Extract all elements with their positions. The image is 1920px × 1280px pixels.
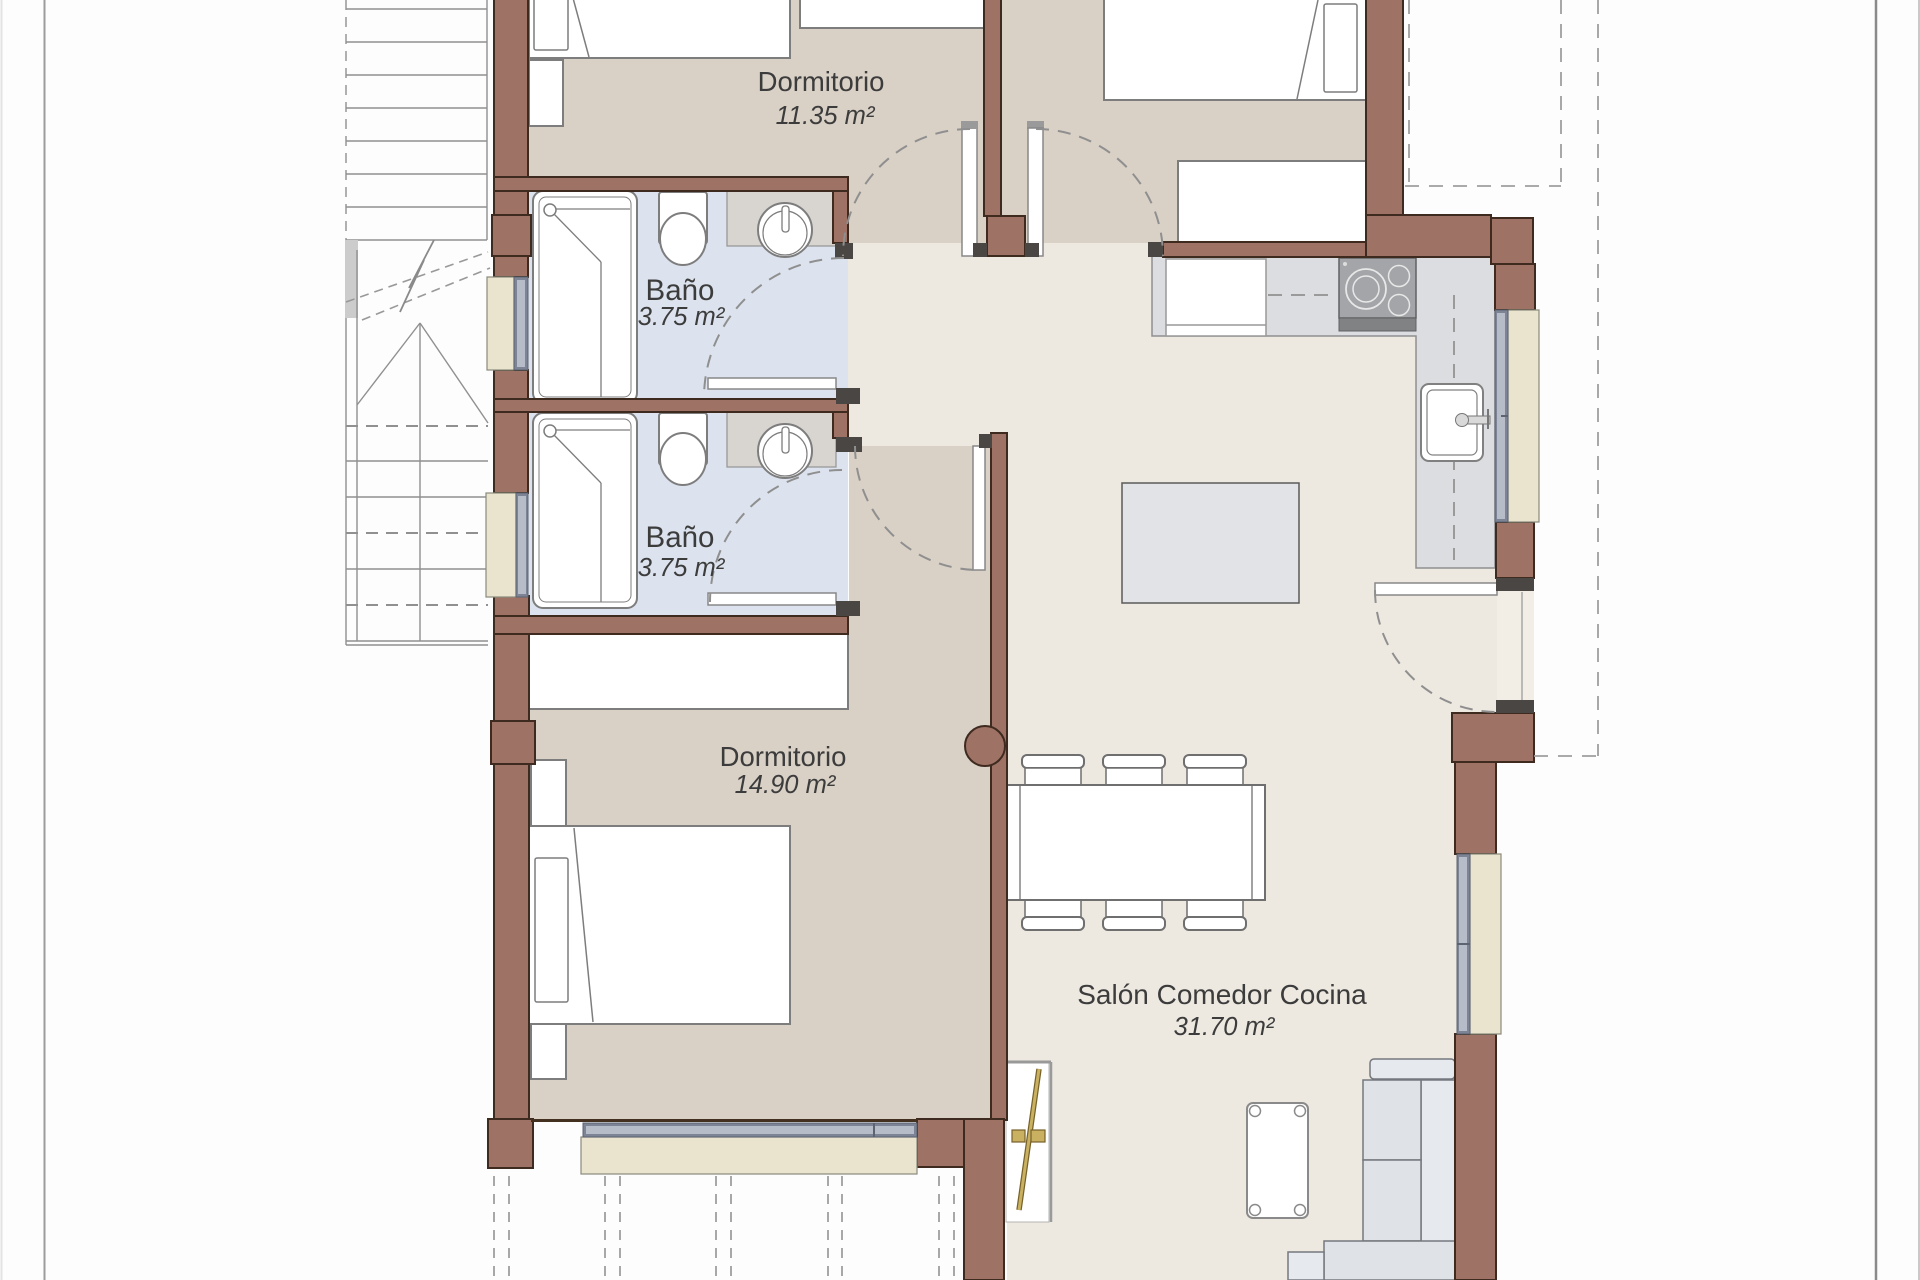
- svg-text:Baño: Baño: [646, 521, 715, 554]
- svg-text:14.90 m²: 14.90 m²: [735, 771, 837, 799]
- svg-text:31.70 m²: 31.70 m²: [1174, 1013, 1276, 1041]
- svg-text:11.35 m²: 11.35 m²: [776, 102, 876, 130]
- svg-text:3.75 m²: 3.75 m²: [638, 554, 726, 582]
- svg-text:3.75 m²: 3.75 m²: [638, 303, 726, 331]
- svg-text:Dormitorio: Dormitorio: [720, 741, 847, 772]
- svg-text:Dormitorio: Dormitorio: [758, 66, 885, 97]
- svg-text:Salón Comedor Cocina: Salón Comedor Cocina: [1077, 979, 1367, 1010]
